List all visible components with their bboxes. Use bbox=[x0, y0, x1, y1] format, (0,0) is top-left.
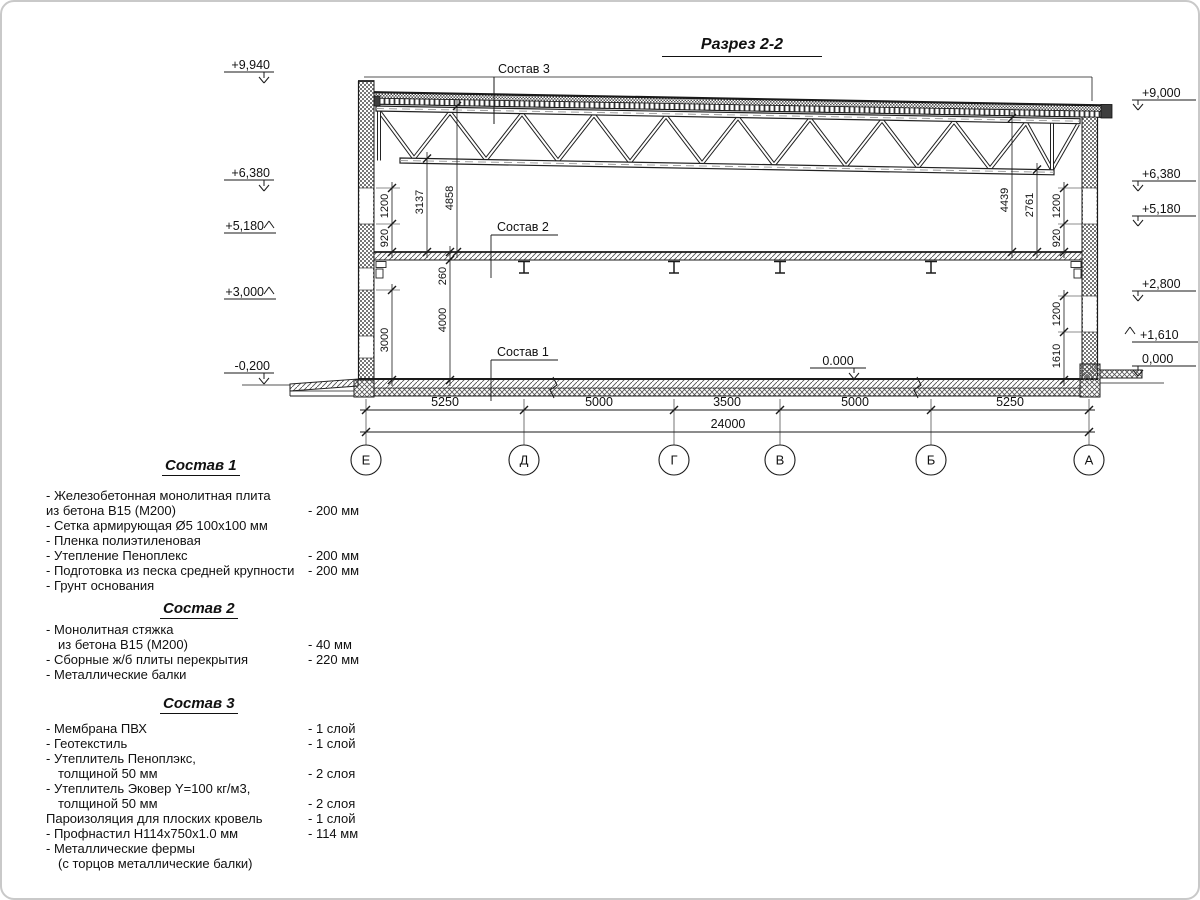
svg-text:+5,180: +5,180 bbox=[225, 219, 264, 233]
svg-text:Г: Г bbox=[670, 453, 677, 468]
svg-text:+1,610: +1,610 bbox=[1140, 328, 1179, 342]
svg-text:+6,380: +6,380 bbox=[231, 166, 270, 180]
list-item: - Металлические балки bbox=[46, 667, 390, 682]
sostav-1-label: Состав 1 bbox=[497, 345, 549, 359]
left-wall bbox=[358, 81, 375, 380]
list-item: - Мембрана ПВХ- 1 слой bbox=[46, 721, 390, 736]
elevation-marks-left: +9,940 +6,380 +5,180 +3,000 -0,200 bbox=[224, 58, 276, 384]
svg-text:3137: 3137 bbox=[414, 190, 426, 214]
svg-text:0,000: 0,000 bbox=[1142, 352, 1173, 366]
elevation-mark: +2,800 bbox=[1132, 277, 1196, 301]
sostav-1-list: - Железобетонная монолитная плита из бет… bbox=[46, 488, 390, 593]
roof-truss bbox=[376, 106, 1080, 175]
list-item: - Металлические фермы bbox=[46, 841, 390, 856]
elevation-marks-right: +9,000 +6,380 +5,180 +2,800 +1, bbox=[1125, 86, 1198, 376]
elevation-mark: +3,000 bbox=[224, 285, 276, 299]
svg-text:+9,000: +9,000 bbox=[1142, 86, 1181, 100]
svg-text:+3,000: +3,000 bbox=[225, 285, 264, 299]
sostav-2-heading: Состав 2 bbox=[160, 600, 238, 619]
list-item: - Железобетонная монолитная плита bbox=[46, 488, 390, 503]
svg-text:1610: 1610 bbox=[1051, 344, 1063, 368]
svg-text:4000: 4000 bbox=[437, 308, 449, 332]
svg-text:+9,940: +9,940 bbox=[231, 58, 270, 72]
svg-text:920: 920 bbox=[379, 229, 391, 247]
svg-text:1200: 1200 bbox=[1051, 194, 1063, 218]
vertical-dims-left: 1200 920 3137 4858 260 4000 3000 bbox=[376, 100, 461, 386]
elevation-mark: +5,180 bbox=[1132, 202, 1196, 226]
elevation-mark: +6,380 bbox=[224, 166, 274, 191]
drawing-sheet: Разрез 2-2 bbox=[0, 0, 1200, 900]
svg-text:-0,200: -0,200 bbox=[235, 359, 270, 373]
section-drawing: Состав 3 Состав 2 Состав 1 +9,940 +6,380 bbox=[2, 2, 1200, 487]
svg-text:Б: Б bbox=[927, 453, 936, 468]
svg-text:+6,380: +6,380 bbox=[1142, 167, 1181, 181]
svg-text:5250: 5250 bbox=[996, 395, 1024, 409]
list-item: из бетона В15 (М200)- 200 мм bbox=[46, 503, 390, 518]
elevation-mark: -0,200 bbox=[224, 359, 274, 384]
sostav-3-label: Состав 3 bbox=[498, 62, 550, 76]
elevation-mark: +5,180 bbox=[224, 219, 276, 233]
mid-floor-slab bbox=[374, 252, 1082, 278]
svg-text:Д: Д bbox=[520, 453, 529, 468]
list-item: - Грунт основания bbox=[46, 578, 390, 593]
svg-text:+5,180: +5,180 bbox=[1142, 202, 1181, 216]
list-item: из бетона В15 (М200)- 40 мм bbox=[46, 637, 390, 652]
svg-text:1200: 1200 bbox=[379, 194, 391, 218]
elevation-mark: +9,940 bbox=[224, 58, 274, 83]
svg-text:4858: 4858 bbox=[444, 186, 456, 210]
list-item: толщиной 50 мм- 2 слоя bbox=[46, 766, 390, 781]
sostav-2-label: Состав 2 bbox=[497, 220, 549, 234]
svg-text:4439: 4439 bbox=[999, 188, 1011, 212]
svg-text:В: В bbox=[776, 453, 785, 468]
list-item: - Утеплитель Пеноплэкс, bbox=[46, 751, 390, 766]
axis-markers: Е Д Г В Б А bbox=[351, 445, 1104, 475]
list-item: - Сетка армирующая Ø5 100х100 мм bbox=[46, 518, 390, 533]
sostav-2-list: - Монолитная стяжка из бетона В15 (М200)… bbox=[46, 622, 390, 682]
sostav-3-heading: Состав 3 bbox=[160, 695, 238, 714]
svg-text:260: 260 bbox=[437, 267, 449, 285]
list-item: Пароизоляция для плоских кровель- 1 слой bbox=[46, 811, 390, 826]
svg-text:3000: 3000 bbox=[379, 328, 391, 352]
svg-text:0.000: 0.000 bbox=[822, 354, 853, 368]
list-item: - Профнастил Н114х750х1.0 мм- 114 мм bbox=[46, 826, 390, 841]
svg-text:+2,800: +2,800 bbox=[1142, 277, 1181, 291]
list-item: - Подготовка из песка средней крупности-… bbox=[46, 563, 390, 578]
elevation-mark: +9,000 bbox=[1132, 86, 1196, 110]
total-dim: 24000 bbox=[711, 417, 746, 431]
svg-text:920: 920 bbox=[1051, 229, 1063, 247]
svg-text:Е: Е bbox=[362, 453, 371, 468]
right-foundation bbox=[1080, 364, 1164, 397]
sostav-3-list: - Мембрана ПВХ- 1 слой - Геотекстиль- 1 … bbox=[46, 721, 390, 871]
elevation-mark: 0,000 bbox=[1132, 352, 1196, 376]
list-item: (с торцов металлические балки) bbox=[46, 856, 390, 871]
list-item: - Геотекстиль- 1 слой bbox=[46, 736, 390, 751]
list-item: - Утеплитель Эковер Y=100 кг/м3, bbox=[46, 781, 390, 796]
list-item: - Пленка полиэтиленовая bbox=[46, 533, 390, 548]
right-wall bbox=[1082, 118, 1098, 381]
elevation-mark: +1,610 bbox=[1125, 327, 1198, 342]
list-item: - Сборные ж/б плиты перекрытия- 220 мм bbox=[46, 652, 390, 667]
svg-text:5000: 5000 bbox=[841, 395, 869, 409]
steel-beam-icons bbox=[518, 262, 937, 274]
svg-text:5250: 5250 bbox=[431, 395, 459, 409]
sostav-1-heading: Состав 1 bbox=[162, 457, 240, 476]
list-item: - Монолитная стяжка bbox=[46, 622, 390, 637]
svg-text:2761: 2761 bbox=[1024, 193, 1036, 217]
svg-text:1200: 1200 bbox=[1051, 302, 1063, 326]
elevation-mark: +6,380 bbox=[1132, 167, 1196, 191]
svg-text:А: А bbox=[1085, 453, 1094, 468]
floor-zero-mark: 0.000 bbox=[810, 354, 866, 379]
bottom-dims: 5250 5000 3500 5000 5250 24000 bbox=[360, 395, 1095, 445]
roof-edge-cap bbox=[1101, 105, 1112, 119]
list-item: толщиной 50 мм- 2 слоя bbox=[46, 796, 390, 811]
list-item: - Утепление Пеноплекс- 200 мм bbox=[46, 548, 390, 563]
svg-text:3500: 3500 bbox=[713, 395, 741, 409]
svg-text:5000: 5000 bbox=[585, 395, 613, 409]
